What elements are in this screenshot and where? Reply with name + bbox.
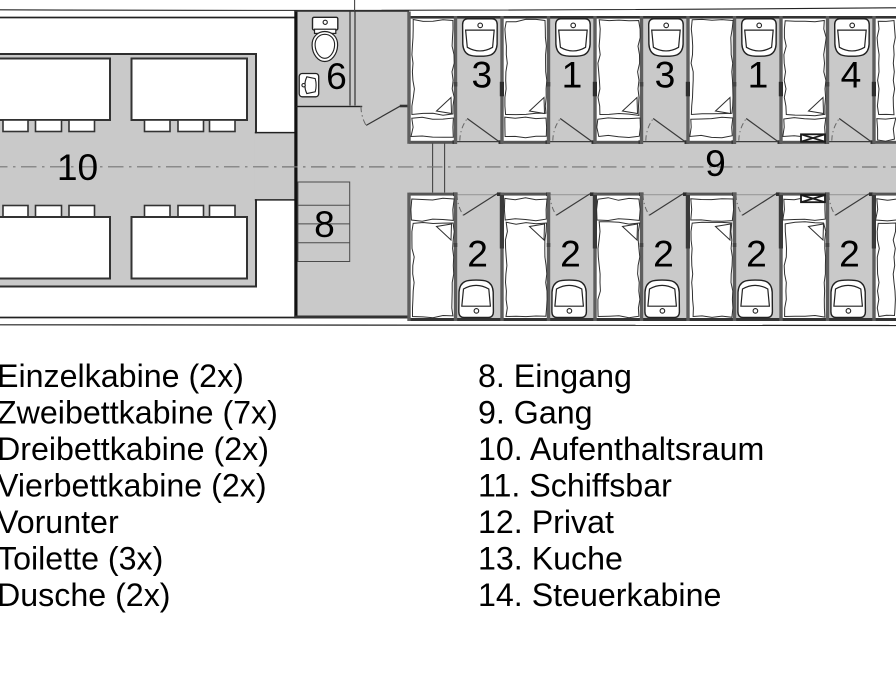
svg-text:2: 2	[746, 233, 767, 275]
svg-text:11. Schiffsbar: 11. Schiffsbar	[478, 467, 672, 503]
svg-text:10: 10	[57, 146, 98, 188]
svg-text:14. Steuerkabine: 14. Steuerkabine	[478, 577, 721, 613]
svg-text:1: 1	[562, 54, 583, 96]
svg-text:1: 1	[748, 54, 769, 96]
svg-text:2: 2	[839, 233, 860, 275]
svg-text:3: 3	[472, 54, 493, 96]
svg-text:Vierbettkabine (2x): Vierbettkabine (2x)	[0, 467, 267, 503]
svg-text:Vorunter: Vorunter	[0, 504, 119, 540]
svg-text:2: 2	[467, 233, 488, 275]
svg-text:13. Kuche: 13. Kuche	[478, 541, 623, 577]
svg-text:4: 4	[841, 54, 862, 96]
svg-text:Zweibettkabine (7x): Zweibettkabine (7x)	[0, 394, 278, 430]
svg-text:8: 8	[314, 203, 335, 245]
svg-text:Einzelkabine (2x): Einzelkabine (2x)	[0, 358, 244, 394]
svg-text:9. Gang: 9. Gang	[478, 394, 593, 430]
svg-text:8. Eingang: 8. Eingang	[478, 358, 632, 394]
svg-text:2: 2	[653, 233, 674, 275]
svg-text:12. Privat: 12. Privat	[478, 504, 614, 540]
svg-text:9: 9	[705, 142, 726, 184]
svg-text:2: 2	[560, 233, 581, 275]
svg-text:Toilette (3x): Toilette (3x)	[0, 541, 163, 577]
svg-text:Dusche (2x): Dusche (2x)	[0, 577, 171, 613]
svg-text:10. Aufenthaltsraum: 10. Aufenthaltsraum	[478, 431, 764, 467]
svg-text:3: 3	[655, 54, 676, 96]
svg-text:Dreibettkabine (2x): Dreibettkabine (2x)	[0, 431, 269, 467]
svg-text:6: 6	[326, 55, 347, 97]
